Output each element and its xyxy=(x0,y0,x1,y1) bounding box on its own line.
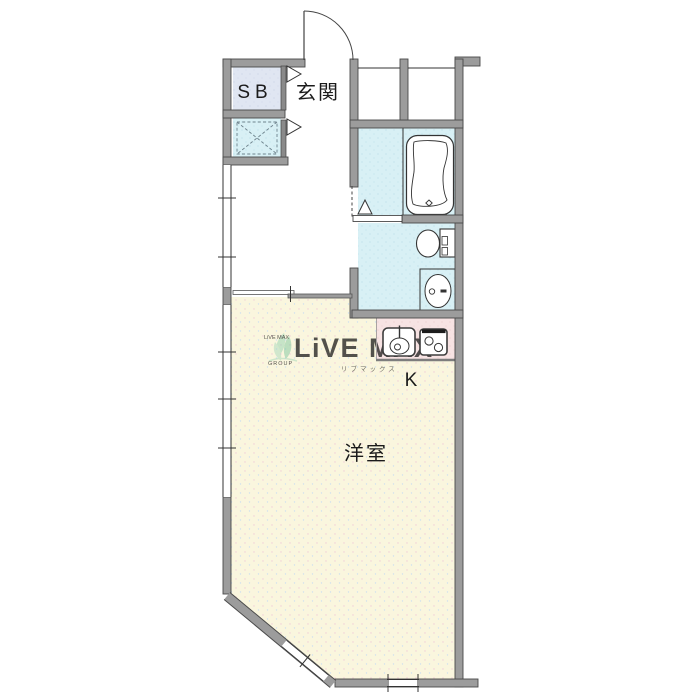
label-main-room: 洋室 xyxy=(344,442,388,465)
wall-alcove-right-thin xyxy=(281,120,286,157)
wall-left-lower xyxy=(223,497,231,594)
bathroom-threshold xyxy=(353,216,402,222)
toilet-icon xyxy=(417,229,456,257)
label-entrance: 玄関 xyxy=(296,81,340,104)
floorplan-svg: LiVE MAX GROUP LiVE MAX リブマックス xyxy=(0,0,700,700)
stove-icon xyxy=(420,329,447,355)
wall-top xyxy=(223,59,305,67)
wall-duct-stub xyxy=(400,59,408,120)
wall-bath-toilet-divider xyxy=(402,215,463,223)
watermark-mini-brand: LiVE MAX xyxy=(264,335,289,341)
bathtub-icon xyxy=(407,136,454,215)
wall-right xyxy=(455,59,463,687)
wall-sb-right-thin xyxy=(281,66,286,110)
wall-toilet-bottom xyxy=(352,310,463,318)
watermark-katakana-text: リブマックス xyxy=(341,364,398,373)
watermark-group-text: GROUP xyxy=(268,361,293,367)
entrance-door-arc xyxy=(304,11,353,60)
floorplan-canvas: LiVE MAX GROUP LiVE MAX リブマックス xyxy=(0,0,700,700)
kitchen-sink-icon xyxy=(383,326,415,357)
wall-sb-divider xyxy=(223,110,285,118)
label-storage: SB xyxy=(237,82,272,103)
wall-left-chunk xyxy=(223,287,231,305)
label-kitchen: K xyxy=(405,370,418,391)
wall-alcove-bottom xyxy=(223,157,288,165)
wall-bathroom-top xyxy=(350,120,463,128)
